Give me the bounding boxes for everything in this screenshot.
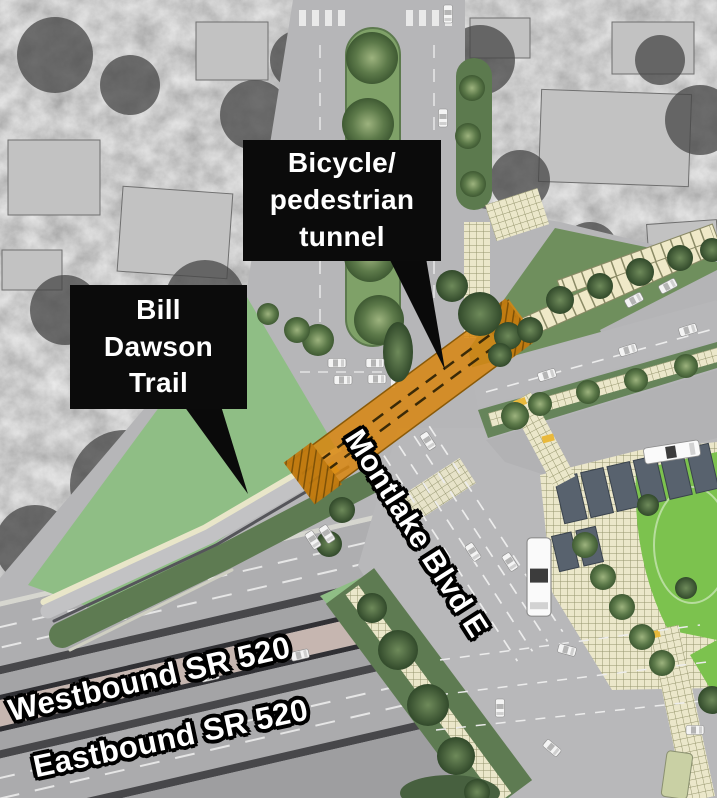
callout-bill-dawson: Bill Dawson Trail (70, 285, 247, 409)
callout-bicycle-tunnel: Bicycle/ pedestrian tunnel (243, 140, 441, 261)
montlake-plan-map: Bicycle/ pedestrian tunnel Bill Dawson T… (0, 0, 717, 798)
